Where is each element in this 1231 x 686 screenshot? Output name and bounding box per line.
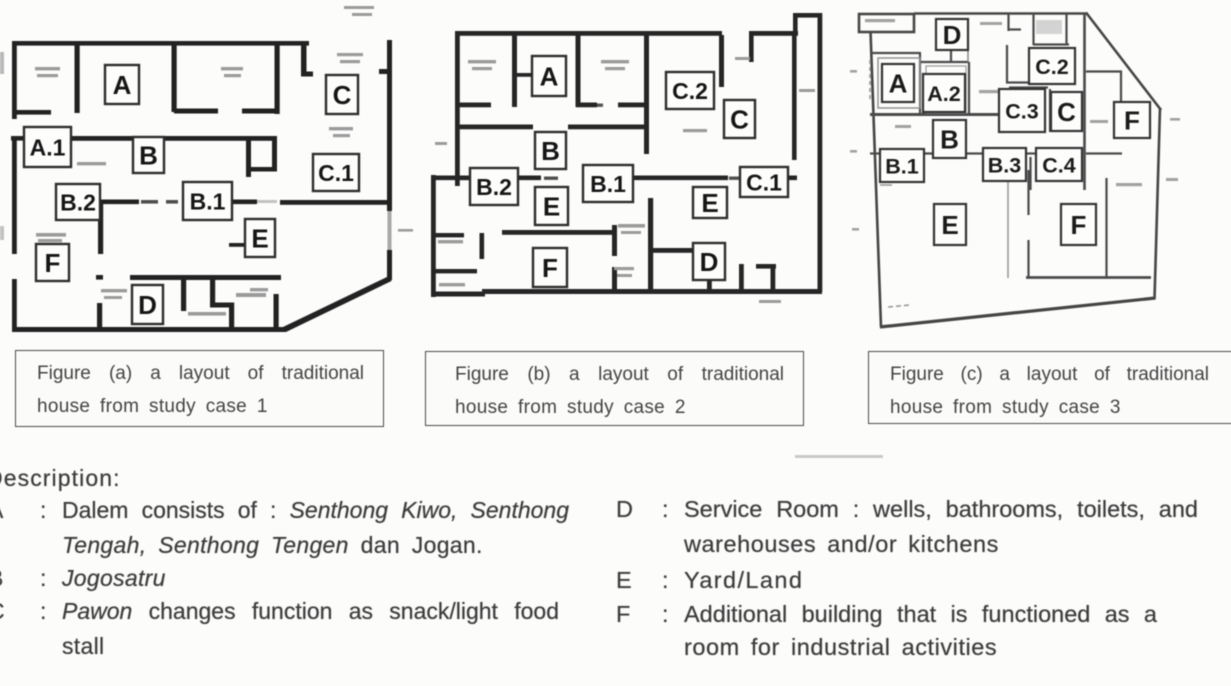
svg-text:F: F <box>1071 210 1087 240</box>
svg-text:A.2: A.2 <box>927 82 961 106</box>
svg-text:D: D <box>138 290 157 320</box>
svg-text:E: E <box>251 224 268 254</box>
svg-text:F: F <box>542 253 558 283</box>
svg-text:C.2: C.2 <box>672 78 708 104</box>
svg-text:C.1: C.1 <box>746 170 782 196</box>
svg-text:B: B <box>940 125 959 155</box>
svg-text:D: D <box>700 247 719 277</box>
svg-text:A: A <box>540 62 559 92</box>
svg-text:E: E <box>941 210 958 240</box>
svg-text:C.4: C.4 <box>1042 154 1076 178</box>
svg-text:E: E <box>543 192 560 222</box>
svg-text:B.3: B.3 <box>988 154 1022 178</box>
svg-text:F: F <box>1124 106 1140 136</box>
svg-text:B.2: B.2 <box>476 174 512 200</box>
svg-text:A: A <box>889 69 908 99</box>
svg-text:B.1: B.1 <box>190 189 226 215</box>
svg-text:F: F <box>45 248 61 278</box>
svg-text:B.1: B.1 <box>590 171 626 197</box>
svg-text:C.1: C.1 <box>318 160 354 186</box>
svg-text:B.2: B.2 <box>60 190 96 216</box>
svg-text:C: C <box>730 105 749 135</box>
svg-text:B: B <box>541 136 560 166</box>
svg-text:C: C <box>1057 97 1076 127</box>
svg-text:A.1: A.1 <box>30 135 66 161</box>
svg-text:B: B <box>139 141 158 171</box>
svg-text:C: C <box>333 80 352 110</box>
svg-text:D: D <box>943 20 962 50</box>
svg-text:A: A <box>113 70 132 100</box>
svg-text:C.2: C.2 <box>1035 55 1069 79</box>
svg-text:C.3: C.3 <box>1005 100 1039 124</box>
svg-text:B.1: B.1 <box>885 155 919 179</box>
svg-text:E: E <box>701 188 718 218</box>
